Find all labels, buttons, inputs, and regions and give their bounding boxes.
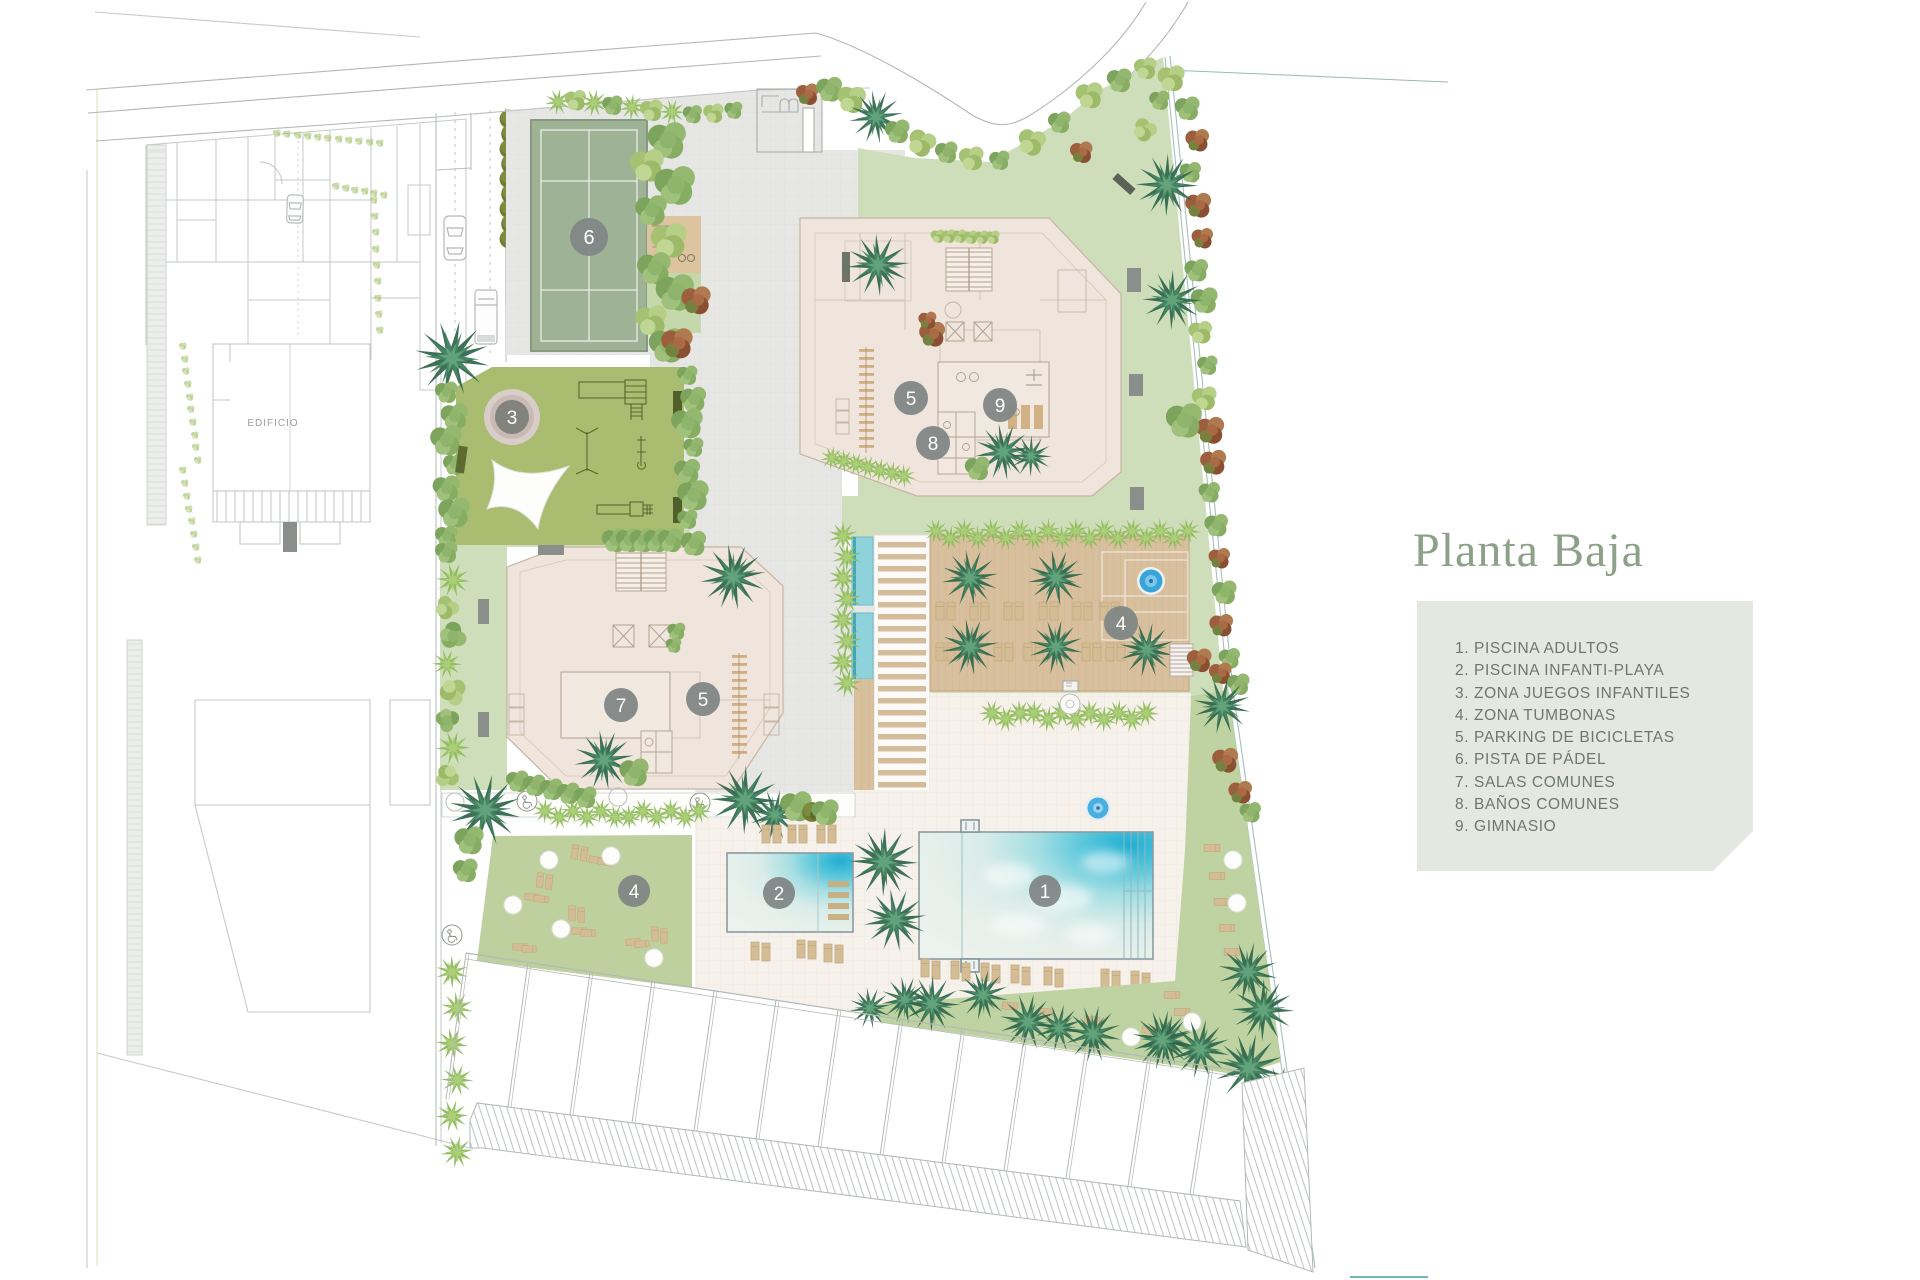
svg-text:9. GIMNASIO: 9. GIMNASIO [1455,818,1556,835]
svg-text:5: 5 [906,389,917,410]
svg-text:5. PARKING DE BICICLETAS: 5. PARKING DE BICICLETAS [1455,729,1675,746]
svg-text:1: 1 [1040,882,1051,903]
svg-text:7. SALAS COMUNES: 7. SALAS COMUNES [1455,774,1615,791]
svg-text:6: 6 [583,227,594,249]
svg-text:5: 5 [698,690,709,711]
svg-text:6. PISTA DE PÁDEL: 6. PISTA DE PÁDEL [1455,751,1606,768]
svg-text:4. ZONA TUMBONAS: 4. ZONA TUMBONAS [1455,707,1616,724]
svg-text:Planta Baja: Planta Baja [1413,524,1644,577]
svg-text:EDIFICIO: EDIFICIO [247,418,298,429]
svg-text:2. PISCINA INFANTI-PLAYA: 2. PISCINA INFANTI-PLAYA [1455,662,1664,679]
svg-text:1. PISCINA ADULTOS: 1. PISCINA ADULTOS [1455,640,1619,657]
svg-text:4: 4 [1116,614,1127,635]
svg-text:3: 3 [507,408,518,429]
svg-text:4: 4 [629,882,640,903]
svg-text:9: 9 [995,396,1006,417]
svg-text:2: 2 [774,884,785,905]
svg-text:8. BAÑOS COMUNES: 8. BAÑOS COMUNES [1455,796,1620,813]
svg-text:3. ZONA JUEGOS INFANTILES: 3. ZONA JUEGOS INFANTILES [1455,685,1691,702]
svg-text:8: 8 [928,434,939,455]
svg-text:7: 7 [616,696,627,717]
